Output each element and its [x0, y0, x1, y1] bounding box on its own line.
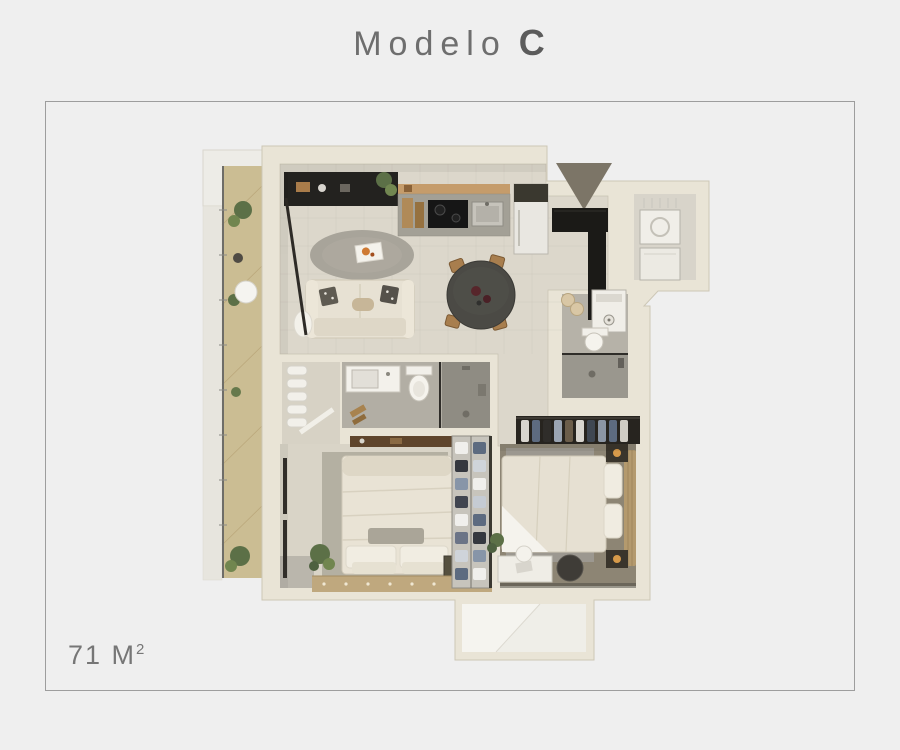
title-main: Modelo — [353, 25, 507, 63]
area-value: 71 M — [68, 640, 136, 670]
page-title: ModeloC — [0, 22, 900, 64]
plan-frame — [45, 101, 855, 691]
page: ModeloC — [0, 0, 900, 750]
title-variant: C — [519, 22, 547, 63]
area-superscript: 2 — [136, 641, 146, 658]
area-label: 71 M2 — [68, 640, 146, 671]
